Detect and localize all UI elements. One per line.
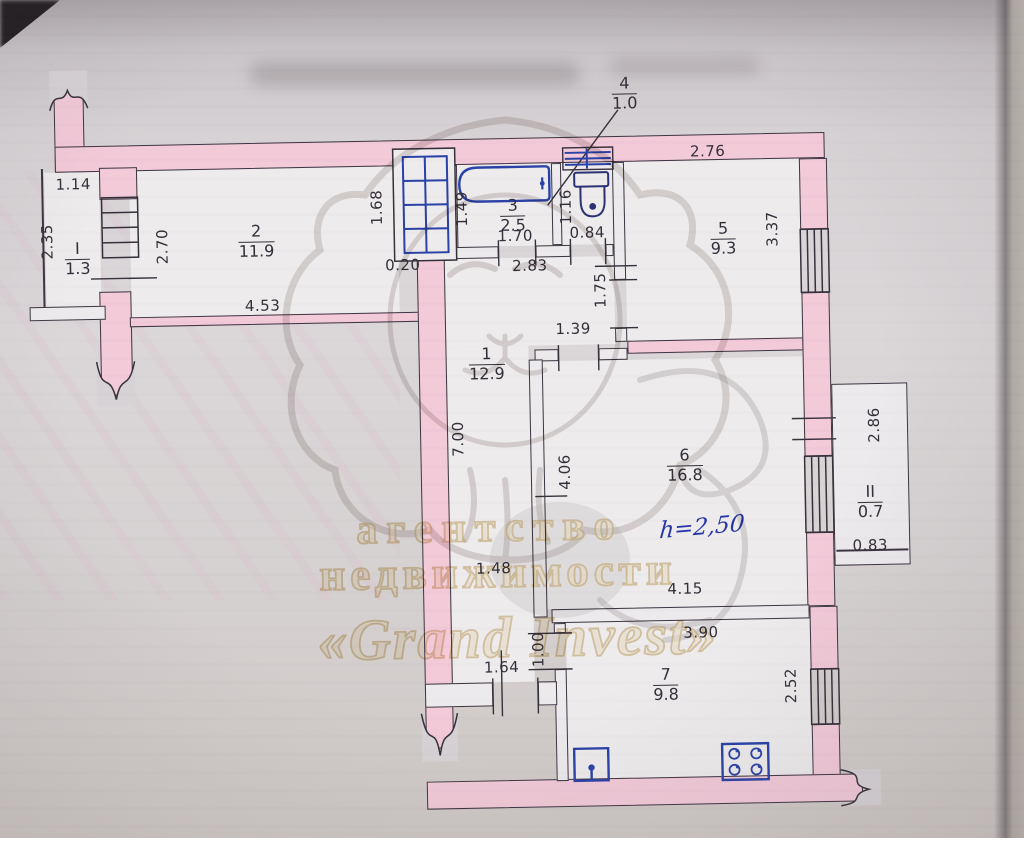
- dim-label: 0.83: [852, 536, 888, 555]
- dim-label: 1.75: [591, 272, 610, 308]
- dim-label: 0.20: [385, 256, 421, 275]
- dim-label: 1.70: [497, 227, 533, 246]
- dim-label: 1.49: [452, 191, 471, 227]
- dim-label: 3.37: [763, 211, 782, 247]
- floor-plan: I 1.3 2 11.9 3 2.5 4 1.0 5 9.3 1 12.9 6 …: [0, 0, 1024, 848]
- dim-label: 1.68: [367, 190, 386, 226]
- room-label-room5: 5 9.3: [710, 220, 736, 257]
- room-label-hall: 1 12.9: [469, 346, 505, 383]
- dim-label: 1.64: [484, 658, 520, 677]
- dim-label: 1.16: [556, 189, 575, 225]
- room-label-room6: 6 16.8: [667, 447, 703, 484]
- dim-label: 2.86: [865, 407, 884, 443]
- dim-label: 2.83: [512, 256, 548, 275]
- dim-label: 2.76: [690, 142, 726, 161]
- room-label-balcony1: I 1.3: [65, 241, 91, 278]
- dimension-ticks: [90, 234, 841, 724]
- dim-label: 4.53: [245, 296, 281, 315]
- stove-icon: [722, 743, 769, 780]
- dim-label: 0.84: [569, 223, 605, 242]
- window-symbol: [805, 456, 834, 533]
- dim-label: 2.52: [782, 668, 801, 704]
- window-symbol: [811, 669, 840, 725]
- room-label-room2: 2 11.9: [238, 223, 274, 260]
- room-label-vent: 4 1.0: [611, 75, 637, 112]
- dim-label: 1.48: [476, 559, 512, 578]
- window-symbol: [101, 197, 138, 258]
- dim-label: 4.15: [667, 579, 703, 598]
- dim-label: 2.35: [38, 224, 57, 260]
- window-symbol: [800, 229, 829, 293]
- dim-label: 3.90: [683, 623, 719, 642]
- floor-plan-photo: I 1.3 2 11.9 3 2.5 4 1.0 5 9.3 1 12.9 6 …: [0, 0, 1024, 838]
- kitchen-sink-icon: [574, 748, 609, 781]
- toilet-icon: [574, 172, 609, 217]
- dim-label: 1.39: [555, 319, 591, 338]
- room-label-balcony2: II 0.7: [857, 484, 883, 521]
- dim-label: 2.70: [153, 229, 172, 265]
- dim-label: 1.14: [55, 175, 91, 194]
- dim-label: 4.06: [555, 454, 574, 490]
- dim-label: 1.00: [529, 632, 548, 668]
- room-label-kitchen: 7 9.8: [653, 667, 679, 704]
- dim-label: 7.00: [449, 421, 468, 457]
- bathtub-icon: [459, 166, 550, 202]
